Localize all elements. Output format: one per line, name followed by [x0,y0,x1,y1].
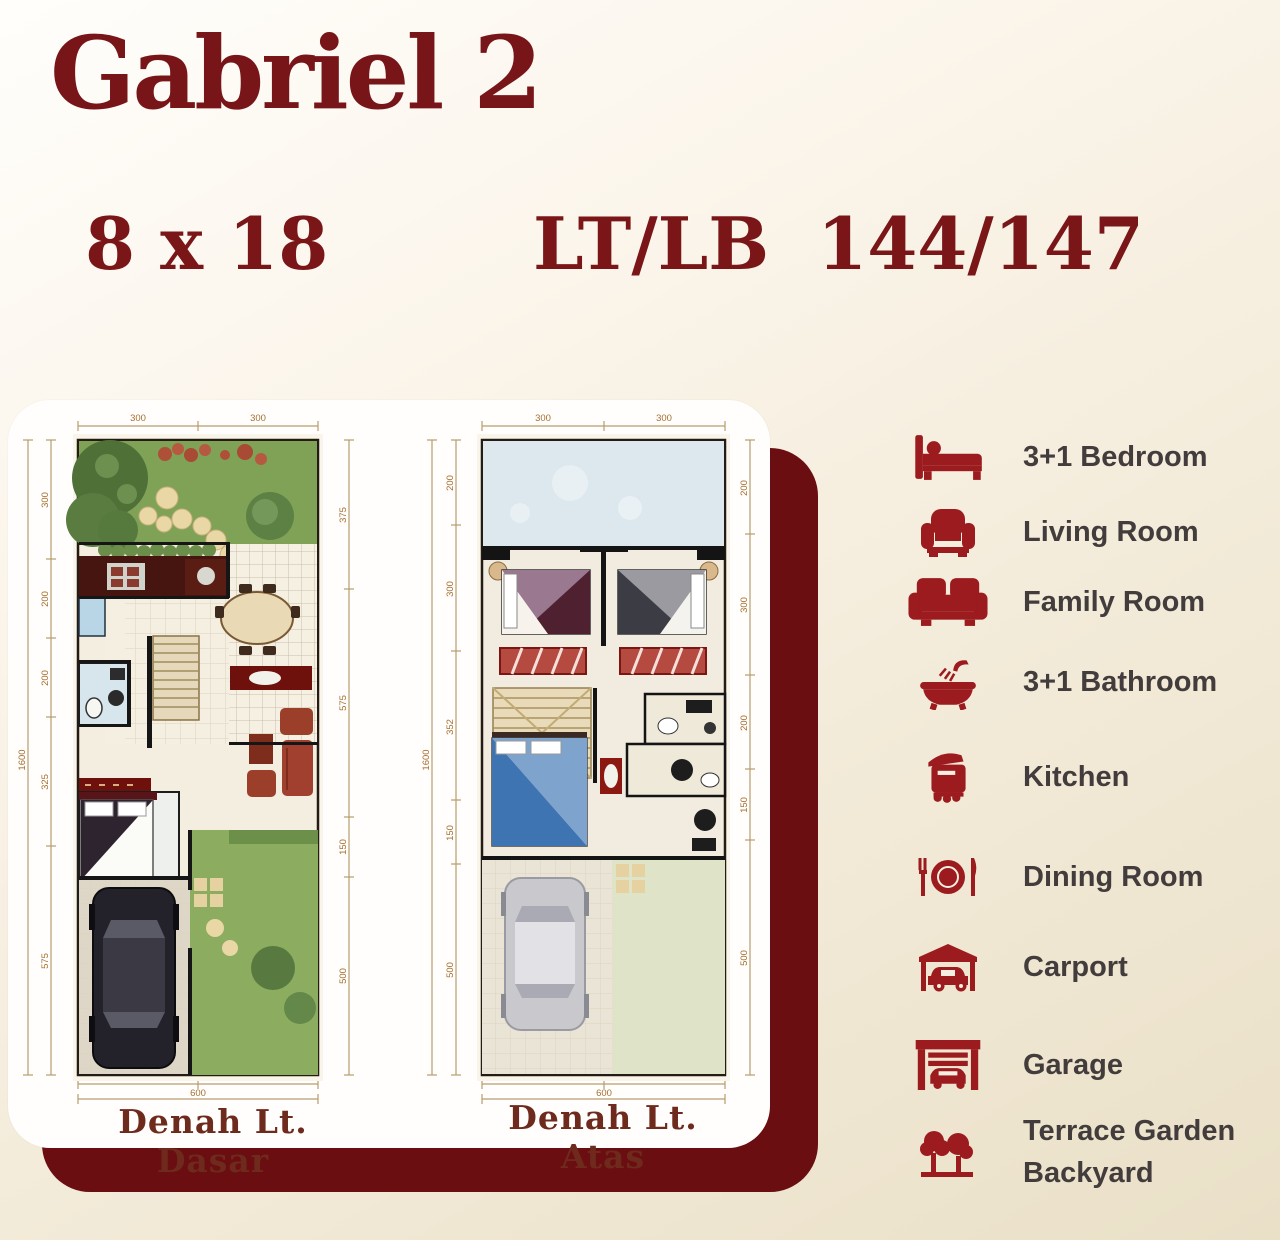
legend-item-living-room: Living Room [900,500,1270,564]
legend-label: Living Room [1023,511,1199,553]
legend-item-terrace-garden: Terrace Garden Backyard [900,1120,1270,1184]
ground-plan-drawing [66,434,323,1081]
legend-label: Family Room [1023,581,1205,623]
legend-item-bedroom: 3+1 Bedroom [900,425,1270,489]
legend-label: 3+1 Bathroom [1023,661,1217,703]
svg-text:200: 200 [739,480,750,496]
brochure-page: { "header": { "title": "Gabriel 2", "siz… [0,0,1280,1240]
svg-text:500: 500 [445,962,456,978]
page-title: Gabriel 2 [50,18,540,128]
svg-text:300: 300 [656,413,672,424]
rice-cooker-icon [900,747,995,807]
legend-item-carport: Carport [900,935,1270,999]
svg-text:575: 575 [338,695,349,711]
svg-text:500: 500 [338,968,349,984]
bed-icon [900,433,995,481]
svg-text:200: 200 [739,715,750,731]
ltlb-value: 144/147 [817,206,1144,282]
trees-icon [900,1124,995,1180]
svg-text:200: 200 [40,591,51,607]
svg-text:500: 500 [739,950,750,966]
legend-item-family-room: Family Room [900,570,1270,634]
carport-car [79,880,190,1074]
upper-floor-caption: Denah Lt. Atas [468,1098,738,1176]
upper-floor-plan: 300 300 1600 200 300 352 150 500 200 300… [420,408,775,1108]
backyard-garden [190,830,318,1075]
svg-text:1600: 1600 [17,749,28,770]
svg-text:300: 300 [739,597,750,613]
svg-text:200: 200 [40,670,51,686]
kitchen-area [79,556,229,598]
legend-label-line2: Backyard [1023,1152,1235,1194]
ltlb-label: LT/LB [533,206,769,282]
bathtub-icon [900,654,995,710]
svg-text:575: 575 [40,953,51,969]
sofa-icon [900,576,995,628]
svg-text:325: 325 [40,774,51,790]
svg-text:300: 300 [130,413,146,424]
legend-label: 3+1 Bedroom [1023,436,1208,478]
legend-label: Terrace Garden Backyard [1023,1110,1235,1194]
legend-item-garage: Garage [900,1033,1270,1097]
carport-icon [900,939,995,995]
legend-label-line1: Terrace Garden [1023,1110,1235,1152]
svg-text:352: 352 [445,719,456,735]
svg-text:1600: 1600 [421,749,432,770]
svg-text:375: 375 [338,507,349,523]
legend-item-kitchen: Kitchen [900,745,1270,809]
armchair-icon [900,506,995,558]
svg-text:300: 300 [40,492,51,508]
svg-text:150: 150 [338,839,349,855]
svg-text:150: 150 [445,825,456,841]
legend-label: Kitchen [1023,756,1129,798]
ground-floor-caption: Denah Lt. Dasar [78,1102,348,1180]
ltlb-row: LT/LB 144/147 [533,206,1144,282]
upper-plan-drawing [477,434,730,1081]
svg-text:300: 300 [535,413,551,424]
lot-size: 8 x 18 [85,206,328,282]
plate-cutlery-icon [900,852,995,902]
svg-text:300: 300 [250,413,266,424]
ground-floor-plan: 300 300 1600 300 200 200 325 575 375 575… [15,408,375,1108]
upper-bottom-area [482,856,725,1074]
svg-text:150: 150 [739,797,750,813]
legend-label: Carport [1023,946,1128,988]
svg-text:600: 600 [190,1088,206,1099]
svg-text:300: 300 [445,581,456,597]
legend-label: Dining Room [1023,856,1203,898]
legend-item-dining-room: Dining Room [900,845,1270,909]
legend-label: Garage [1023,1044,1123,1086]
svg-text:200: 200 [445,475,456,491]
legend-item-bathroom: 3+1 Bathroom [900,650,1270,714]
roof-void [483,441,724,546]
garage-icon [900,1040,995,1090]
